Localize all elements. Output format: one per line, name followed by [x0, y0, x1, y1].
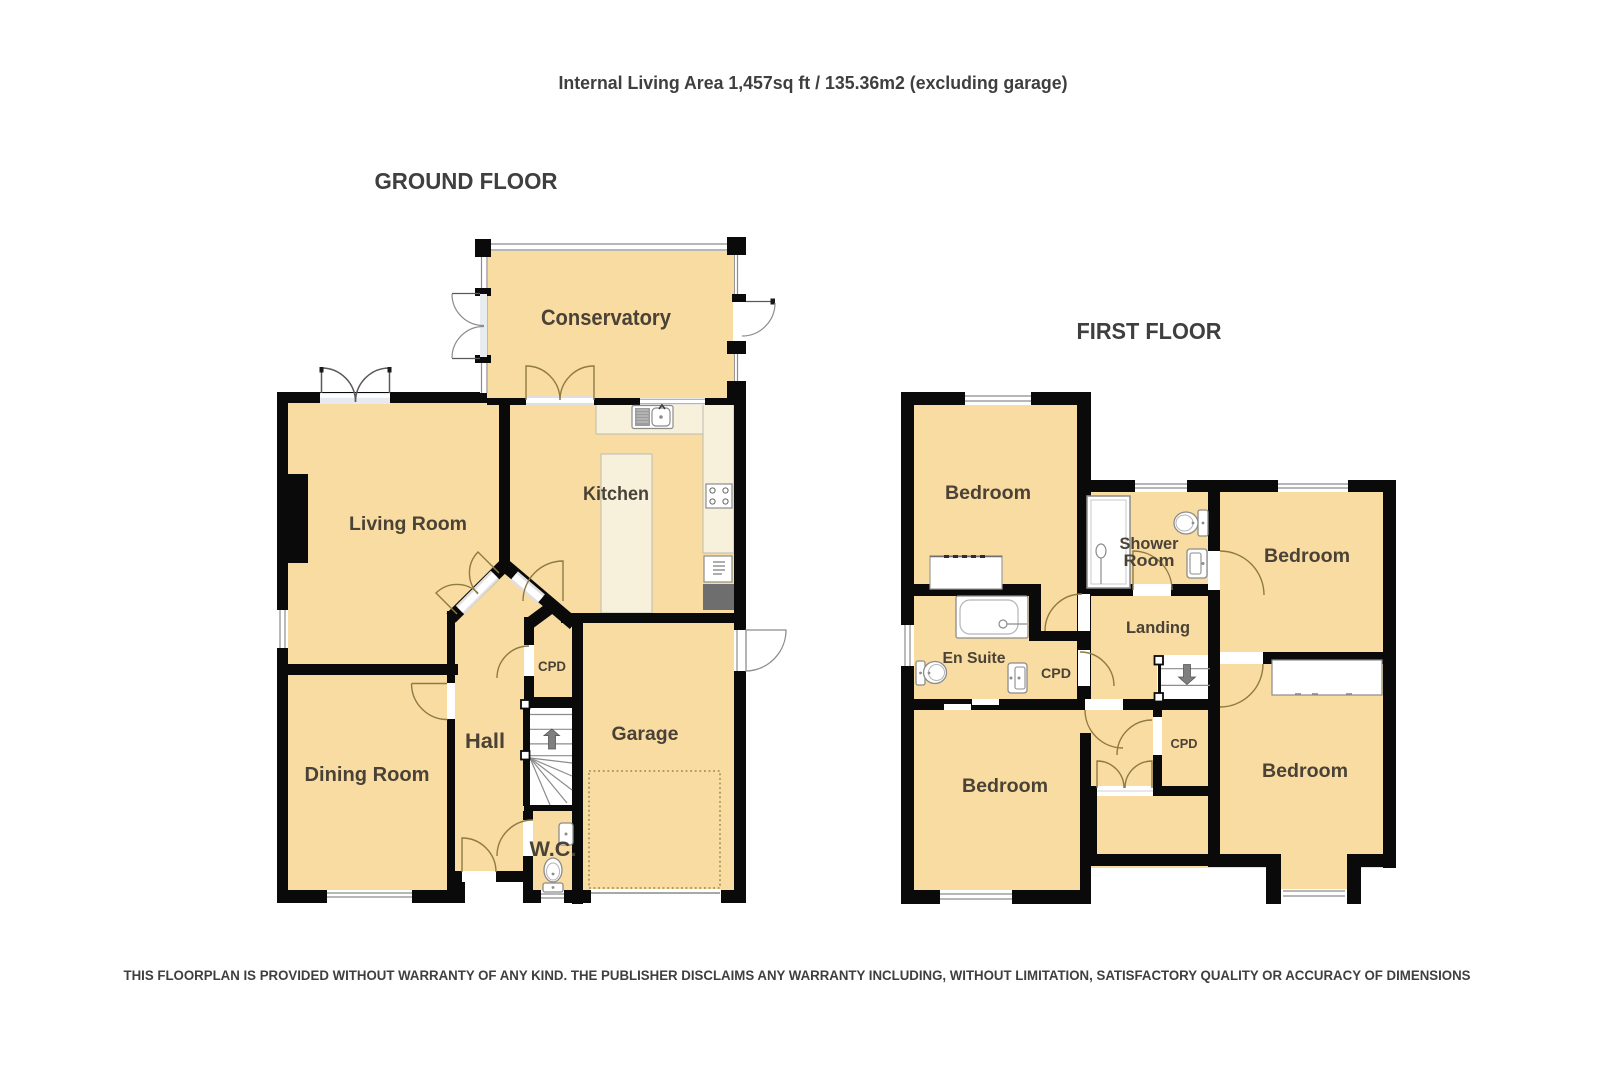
- svg-text:CPD: CPD: [1041, 665, 1071, 681]
- svg-text:FIRST FLOOR: FIRST FLOOR: [1077, 318, 1222, 344]
- svg-text:Landing: Landing: [1126, 619, 1190, 637]
- svg-text:Bedroom: Bedroom: [945, 482, 1031, 504]
- svg-text:W.C.: W.C.: [530, 837, 577, 861]
- svg-text:CPD: CPD: [1171, 736, 1198, 751]
- svg-text:Dining Room: Dining Room: [305, 764, 430, 786]
- svg-text:Internal Living Area 1,457sq f: Internal Living Area 1,457sq ft / 135.36…: [559, 73, 1068, 93]
- svg-text:Kitchen: Kitchen: [583, 484, 649, 505]
- svg-text:Garage: Garage: [612, 723, 679, 745]
- svg-text:CPD: CPD: [538, 659, 566, 674]
- svg-text:En Suite: En Suite: [943, 650, 1006, 667]
- svg-text:Living Room: Living Room: [349, 513, 467, 535]
- svg-text:Conservatory: Conservatory: [541, 305, 672, 330]
- svg-text:Bedroom: Bedroom: [962, 775, 1048, 797]
- svg-text:Room: Room: [1124, 551, 1175, 570]
- svg-text:Bedroom: Bedroom: [1264, 545, 1350, 567]
- svg-text:THIS FLOORPLAN IS PROVIDED WIT: THIS FLOORPLAN IS PROVIDED WITHOUT WARRA…: [124, 968, 1471, 983]
- svg-text:Hall: Hall: [465, 730, 505, 753]
- svg-text:Bedroom: Bedroom: [1262, 760, 1348, 782]
- svg-text:GROUND FLOOR: GROUND FLOOR: [375, 168, 558, 194]
